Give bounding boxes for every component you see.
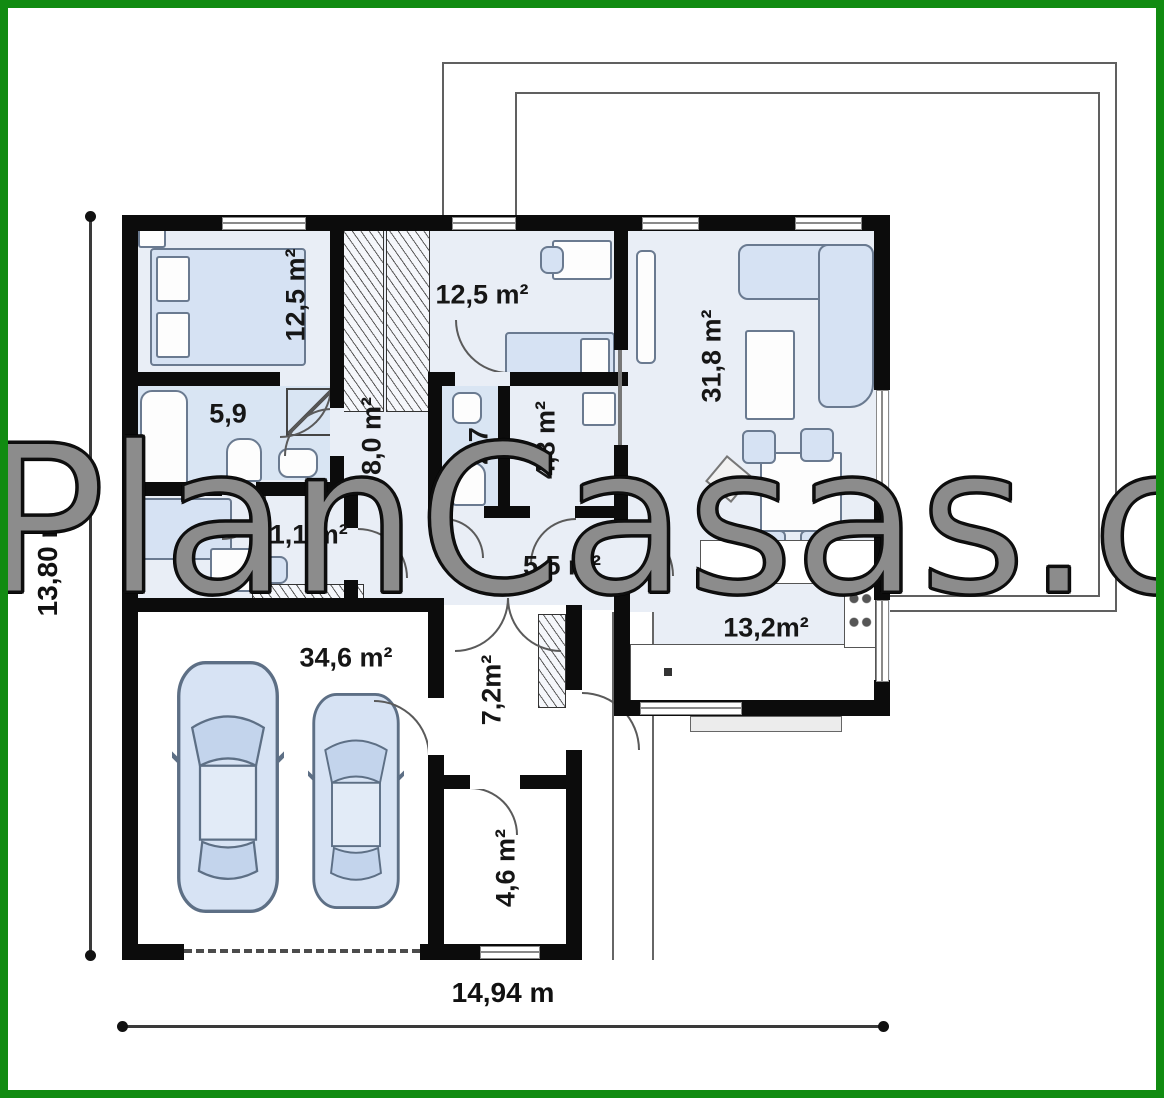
wall-right-lower xyxy=(874,680,890,716)
kitchen-step xyxy=(690,716,842,732)
wall-bedroom2-living-upper xyxy=(614,215,628,350)
room-label-bathroom: 5,9 xyxy=(209,399,247,430)
sink-icon xyxy=(452,392,482,424)
window-bedroom1 xyxy=(222,217,306,230)
wall-right-upper xyxy=(874,215,890,390)
wall-garage-top xyxy=(122,598,444,612)
door-gap-bedroom2 xyxy=(455,372,510,386)
washer-icon xyxy=(582,392,616,426)
window-office xyxy=(124,500,137,582)
terrace-inner-top-line xyxy=(515,92,1100,94)
wall-garage-bottom-left xyxy=(122,944,184,960)
wall-bedroom2-living-lower xyxy=(614,445,628,520)
counter-dot xyxy=(664,668,672,676)
terrace-inner-right-line xyxy=(1098,92,1100,597)
dimension-line-vertical xyxy=(89,218,92,956)
wall-entry-left-upper xyxy=(428,598,444,698)
door-gap-storage xyxy=(530,506,575,518)
wall-hall-wc xyxy=(428,372,442,518)
chair-icon xyxy=(540,246,564,274)
door-gap-bathroom xyxy=(330,408,344,456)
dining-chair-icon xyxy=(742,430,776,464)
wall-right-middle xyxy=(874,490,890,600)
wall-left xyxy=(122,215,138,960)
wall-wc-storage xyxy=(498,386,510,518)
room-label-utility: 4,6 m² xyxy=(491,829,522,907)
terrace-sliding-door xyxy=(876,600,889,682)
wardrobe-bedroom1 xyxy=(340,230,384,412)
door-gap-front-door xyxy=(566,690,582,750)
dimension-dot xyxy=(85,950,96,961)
pillow-icon xyxy=(580,338,610,376)
sofa-corner-icon xyxy=(818,244,874,408)
dimension-dot xyxy=(117,1021,128,1032)
terrace-inner-left-line xyxy=(515,92,517,217)
bathtub-icon xyxy=(140,390,188,492)
room-label-storage: 4,8 m² xyxy=(531,401,562,479)
pillow-icon xyxy=(156,312,190,358)
pillow-icon xyxy=(156,256,190,302)
window-living-right xyxy=(876,390,889,492)
door-gap-bedroom1 xyxy=(280,372,330,386)
dimension-label-height: 13,80 m xyxy=(32,514,64,617)
wardrobe-bedroom2 xyxy=(386,230,430,412)
room-label-entry: 7,2m² xyxy=(477,655,508,726)
garage-door-dashed-line xyxy=(184,949,420,953)
stove-icon xyxy=(844,584,876,648)
car-icon xyxy=(172,658,284,916)
dining-chair-icon xyxy=(800,428,834,462)
room-label-hall: 8,0 m² xyxy=(357,397,388,475)
nightstand-icon xyxy=(138,228,166,248)
room-label-living: 31,8 m² xyxy=(697,309,728,402)
window-living-top xyxy=(642,217,699,230)
room-label-garage: 34,6 m² xyxy=(299,643,392,674)
toilet-icon xyxy=(452,462,486,506)
room-label-bedroom1: 12,5 m² xyxy=(281,248,312,341)
window-bedroom2 xyxy=(452,217,516,230)
window-kitchen xyxy=(640,702,742,715)
wall-kitchen-left xyxy=(614,585,630,716)
room-label-bedroom2: 12,5 m² xyxy=(435,280,528,311)
dimension-line-horizontal xyxy=(122,1025,884,1028)
room-label-office: 11,1 m² xyxy=(256,520,348,551)
chair-icon xyxy=(262,556,288,584)
coffee-table-icon xyxy=(745,330,795,420)
dimension-dot xyxy=(85,211,96,222)
tv-cabinet-icon xyxy=(636,250,656,364)
window-living-top2 xyxy=(795,217,862,230)
terrace-outer-bottom-line xyxy=(888,610,1117,612)
terrace-outer-right-line xyxy=(1115,62,1117,612)
toilet-icon xyxy=(226,438,262,482)
window-utility xyxy=(480,946,540,959)
door-gap-office-bath xyxy=(222,482,256,496)
wall-bedroom1-right xyxy=(330,215,344,385)
kitchen-island-counter xyxy=(700,540,876,584)
door-gap-wc xyxy=(444,506,484,518)
terrace-inner-bottom-line xyxy=(888,595,1098,597)
door-gap-utility xyxy=(470,775,520,789)
bedroom2-living-partition xyxy=(618,350,622,445)
dimension-dot xyxy=(878,1021,889,1032)
door-gap-garage-entry xyxy=(428,698,444,755)
room-label-kitchen: 13,2m² xyxy=(723,613,809,644)
terrace-outer-left-line xyxy=(442,62,444,217)
dimension-label-width: 14,94 m xyxy=(452,977,555,1009)
room-label-wc: 2,7 xyxy=(464,427,495,465)
dining-table-icon xyxy=(760,452,842,532)
terrace-outer-top-line xyxy=(442,62,1117,64)
floor-plan-canvas: 12,5 m² 12,5 m² 31,8 m² 5,9 8,0 m² 2,7 4… xyxy=(0,0,1164,1098)
room-label-corridor: 5,5 m² xyxy=(523,551,601,582)
